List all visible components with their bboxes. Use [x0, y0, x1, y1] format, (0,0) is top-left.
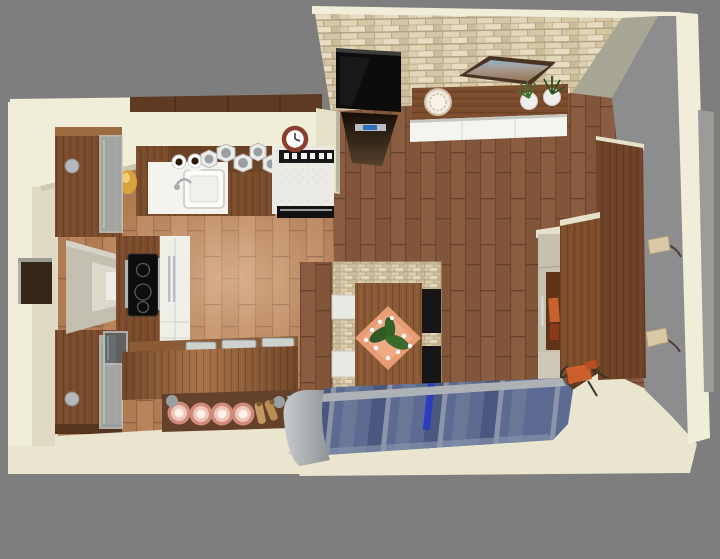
oven-front — [277, 206, 334, 218]
upper-cabinets — [130, 94, 322, 112]
wall-tv — [336, 48, 401, 112]
tall-white-cabinet — [160, 236, 190, 352]
wardrobe — [596, 136, 646, 380]
wall-panel — [18, 258, 52, 304]
white-chair — [332, 295, 357, 319]
wall-clock — [284, 128, 306, 150]
dining-set — [332, 262, 441, 391]
decorative-plate — [425, 89, 451, 115]
kitchen-counter — [119, 143, 279, 216]
partition-wall-edge — [336, 112, 340, 194]
kitchen-sink — [148, 162, 228, 214]
render-viewport — [0, 0, 720, 559]
fridge-handle — [541, 296, 544, 326]
white-chair — [332, 351, 357, 377]
cabinet-knob — [65, 159, 79, 173]
pendant-lights — [162, 390, 292, 432]
stool-knob — [166, 395, 178, 407]
range-cooker — [272, 146, 334, 218]
display-cabinet-upper — [55, 127, 122, 237]
stool-knob — [273, 396, 285, 408]
breakfast-bar — [122, 336, 298, 400]
floorplan-render — [0, 0, 720, 559]
cabinet-knob — [65, 392, 79, 406]
